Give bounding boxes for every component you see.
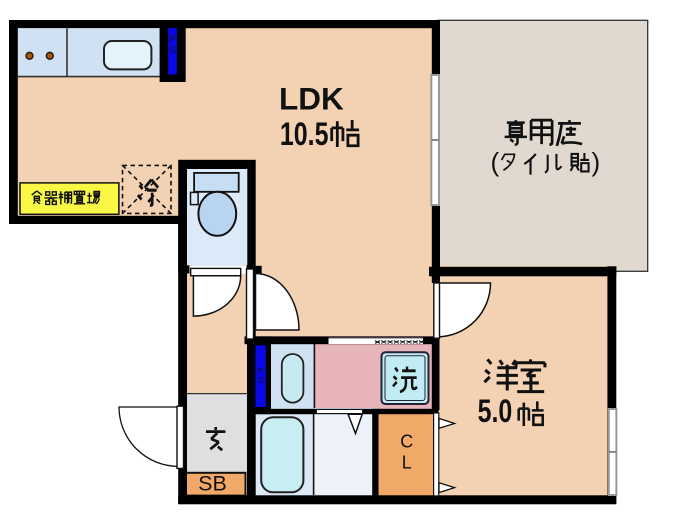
- svg-text:L: L: [402, 453, 412, 473]
- svg-text:P: P: [170, 34, 176, 44]
- svg-text:LDK: LDK: [279, 81, 344, 117]
- svg-text:C: C: [400, 432, 413, 452]
- svg-text:(: (: [491, 147, 500, 177]
- svg-text:S: S: [258, 375, 264, 385]
- svg-text:SB: SB: [198, 472, 227, 496]
- svg-text:5.0: 5.0: [478, 394, 513, 430]
- svg-text:S: S: [170, 45, 176, 55]
- svg-text:): ): [592, 147, 601, 177]
- svg-text:10.5: 10.5: [280, 117, 329, 153]
